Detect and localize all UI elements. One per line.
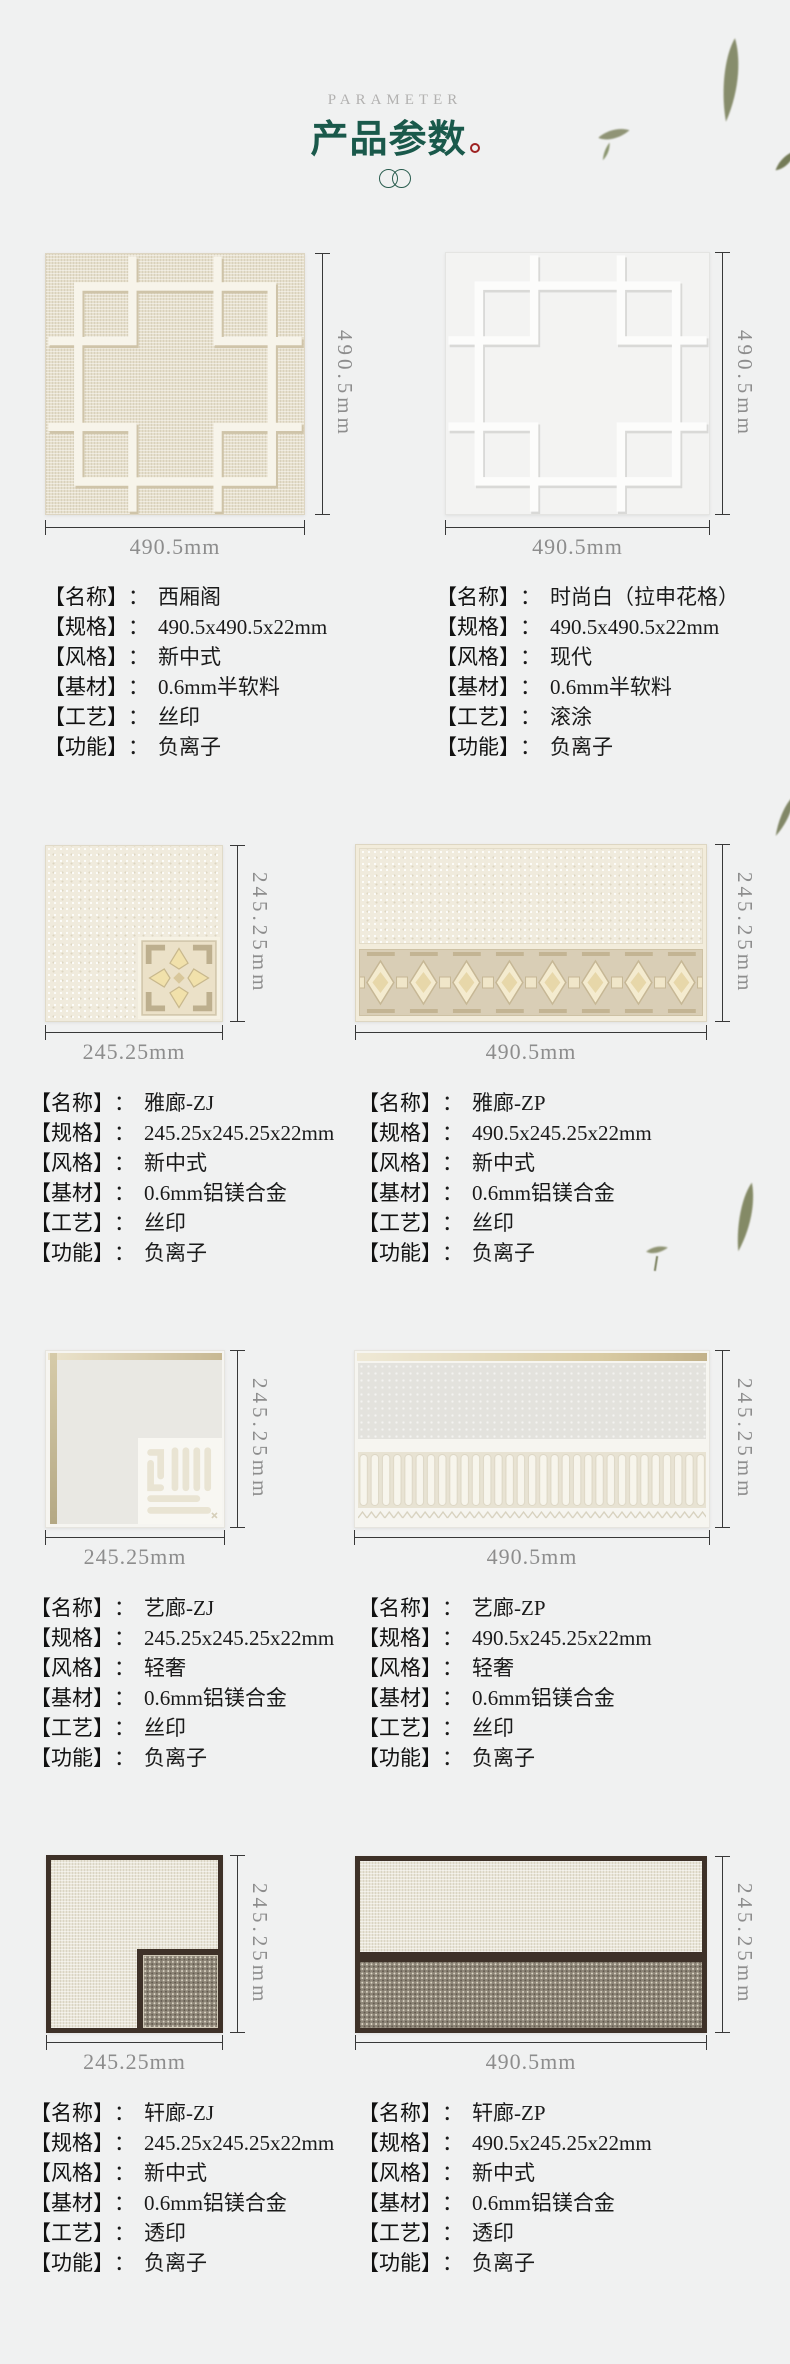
width-dimension-line [46,2042,223,2043]
spec-row: 【功能】：负离子 [30,1238,334,1268]
lattice-pattern [446,253,709,514]
height-dimension-line [237,1350,238,1528]
spec-row: 【规格】：490.5x245.25x22mm [358,1118,652,1148]
title-accent-dot-icon [470,143,480,153]
spec-row: 【规格】：490.5x245.25x22mm [358,2128,652,2158]
height-dimension-label: 245.25mm [729,1856,757,2033]
height-dimension-line [722,844,723,1022]
spec-row: 【功能】：负离子 [30,1743,334,1773]
top-stripe [48,1353,222,1360]
spec-row: 【基材】：0.6mm铝镁合金 [358,2188,652,2218]
width-dimension-line [45,1032,223,1033]
width-dimension-label: 490.5mm [354,1544,710,1570]
product-image-xuanlang-zj [46,1855,223,2033]
spec-row: 【规格】：245.25x245.25x22mm [30,1623,334,1653]
panel-field [358,1363,706,1439]
panel-field [360,1861,702,1952]
width-dimension-line [45,527,305,528]
height-dimension-label: 490.5mm [329,253,357,515]
leaf-icon [767,791,790,840]
height-dimension-label: 245.25mm [729,844,757,1022]
spec-row: 【基材】：0.6mm铝镁合金 [30,2188,334,2218]
spec-row: 【基材】：0.6mm铝镁合金 [358,1683,652,1713]
height-dimension-line [722,1856,723,2033]
width-dimension-label: 490.5mm [45,534,305,560]
height-dimension-label: 245.25mm [244,845,272,1022]
width-dimension-line [445,527,710,528]
spec-row: 【基材】：0.6mm铝镁合金 [358,1178,652,1208]
spec-row: 【风格】：轻奢 [358,1653,652,1683]
spec-row: 【规格】：490.5x490.5x22mm [436,612,739,642]
width-dimension-label: 245.25mm [46,2049,223,2075]
product-specs: 【名称】：艺廊-ZP 【规格】：490.5x245.25x22mm 【风格】：轻… [358,1593,652,1773]
height-dimension-label: 245.25mm [729,1350,757,1528]
width-dimension-line [355,2042,707,2043]
product-image-yalang-zp [355,844,707,1022]
spec-row: 【基材】：0.6mm铝镁合金 [30,1683,334,1713]
product-specs: 【名称】：轩廊-ZP 【规格】：490.5x245.25x22mm 【风格】：新… [358,2098,652,2278]
spec-row: 【功能】：负离子 [30,2248,334,2278]
product-image-yalang-zj [45,845,223,1022]
spec-row: 【名称】：时尚白（拉申花格） [436,582,739,612]
height-dimension-label: 490.5mm [729,252,757,515]
spec-row: 【规格】：245.25x245.25x22mm [30,1118,334,1148]
height-dimension-line [237,1855,238,2033]
width-dimension-label: 245.25mm [45,1039,223,1065]
product-specs: 【名称】：轩廊-ZJ 【规格】：245.25x245.25x22mm 【风格】：… [30,2098,334,2278]
spec-row: 【规格】：490.5x245.25x22mm [358,1623,652,1653]
left-stripe [50,1353,57,1524]
height-dimension-label: 245.25mm [244,1855,272,2033]
spec-row: 【风格】：轻奢 [30,1653,334,1683]
spec-row: 【工艺】：丝印 [358,1713,652,1743]
width-dimension-label: 490.5mm [355,2049,707,2075]
spec-row: 【名称】：艺廊-ZJ [30,1593,334,1623]
width-dimension-label: 490.5mm [355,1039,707,1065]
spec-row: 【功能】：负离子 [44,732,327,762]
spec-row: 【基材】：0.6mm半软料 [44,672,327,702]
spec-row: 【工艺】：透印 [30,2218,334,2248]
spec-row: 【风格】：新中式 [358,1148,652,1178]
leaf-icon [728,1180,764,1253]
spec-row: 【功能】：负离子 [436,732,739,762]
spec-row: 【风格】：新中式 [358,2158,652,2188]
section-eyebrow: PARAMETER [0,92,790,109]
spec-row: 【基材】：0.6mm铝镁合金 [30,1178,334,1208]
spec-row: 【风格】：新中式 [44,642,327,672]
spec-row: 【名称】：西厢阁 [44,582,327,612]
height-dimension-label: 245.25mm [244,1350,272,1528]
height-dimension-line [322,253,323,515]
spec-row: 【功能】：负离子 [358,1238,652,1268]
product-specs: 【名称】：西厢阁 【规格】：490.5x490.5x22mm 【风格】：新中式 … [44,582,327,762]
spec-row: 【名称】：雅廊-ZJ [30,1088,334,1118]
spec-row: 【名称】：雅廊-ZP [358,1088,652,1118]
spec-row: 【功能】：负离子 [358,2248,652,2278]
spec-row: 【工艺】：滚涂 [436,702,739,732]
product-parameters-page: PARAMETER 产品参数 490.5mm 490.5mm [0,0,790,2364]
spec-row: 【风格】：新中式 [30,1148,334,1178]
corner-maze [138,1438,222,1524]
spec-row: 【基材】：0.6mm半软料 [436,672,739,702]
width-dimension-line [355,1032,707,1033]
product-image-yilang-zp [354,1350,710,1528]
spec-row: 【功能】：负离子 [358,1743,652,1773]
product-image-xixiangge [45,253,305,515]
divider-bar [360,1952,702,1962]
product-specs: 【名称】：时尚白（拉申花格） 【规格】：490.5x490.5x22mm 【风格… [436,582,739,762]
height-dimension-line [722,1350,723,1528]
width-dimension-line [45,1537,225,1538]
spec-row: 【规格】：490.5x490.5x22mm [44,612,327,642]
width-dimension-line [354,1537,710,1538]
corner-mesh-frame [137,1949,218,2028]
slat-band [358,1452,706,1508]
spec-row: 【工艺】：丝印 [44,702,327,732]
spec-row: 【规格】：245.25x245.25x22mm [30,2128,334,2158]
width-dimension-label: 245.25mm [45,1544,225,1570]
spec-row: 【工艺】：透印 [358,2218,652,2248]
product-specs: 【名称】：雅廊-ZJ 【规格】：245.25x245.25x22mm 【风格】：… [30,1088,334,1268]
page-title-text: 产品参数 [310,119,466,161]
leaf-icon [713,37,749,123]
spec-row: 【风格】：现代 [436,642,739,672]
spec-row: 【名称】：轩廊-ZP [358,2098,652,2128]
mesh-texture [360,1962,702,2028]
spec-row: 【工艺】：丝印 [358,1208,652,1238]
page-title: 产品参数 [0,108,790,163]
width-dimension-label: 490.5mm [445,534,710,560]
ring-right-icon [392,169,411,188]
spec-row: 【风格】：新中式 [30,2158,334,2188]
product-specs: 【名称】：雅廊-ZP 【规格】：490.5x245.25x22mm 【风格】：新… [358,1088,652,1268]
height-dimension-line [722,252,723,515]
spec-row: 【工艺】：丝印 [30,1208,334,1238]
product-specs: 【名称】：艺廊-ZJ 【规格】：245.25x245.25x22mm 【风格】：… [30,1593,334,1773]
leaf-stem [654,1256,658,1271]
product-image-xuanlang-zp [355,1856,707,2033]
lattice-pattern [46,254,304,514]
ornament-band [359,949,703,1016]
spec-row: 【名称】：艺廊-ZP [358,1593,652,1623]
spec-row: 【工艺】：丝印 [30,1713,334,1743]
top-stripe [357,1353,707,1361]
product-image-yilang-zj [45,1350,225,1528]
product-image-shishangbai [445,252,710,515]
mesh-texture [143,1955,218,2028]
overlap-rings-icon [0,169,790,188]
corner-ornament [138,937,220,1019]
panel-field [359,848,703,944]
height-dimension-line [237,845,238,1022]
zigzag-trim [358,1509,706,1521]
spec-row: 【名称】：轩廊-ZJ [30,2098,334,2128]
